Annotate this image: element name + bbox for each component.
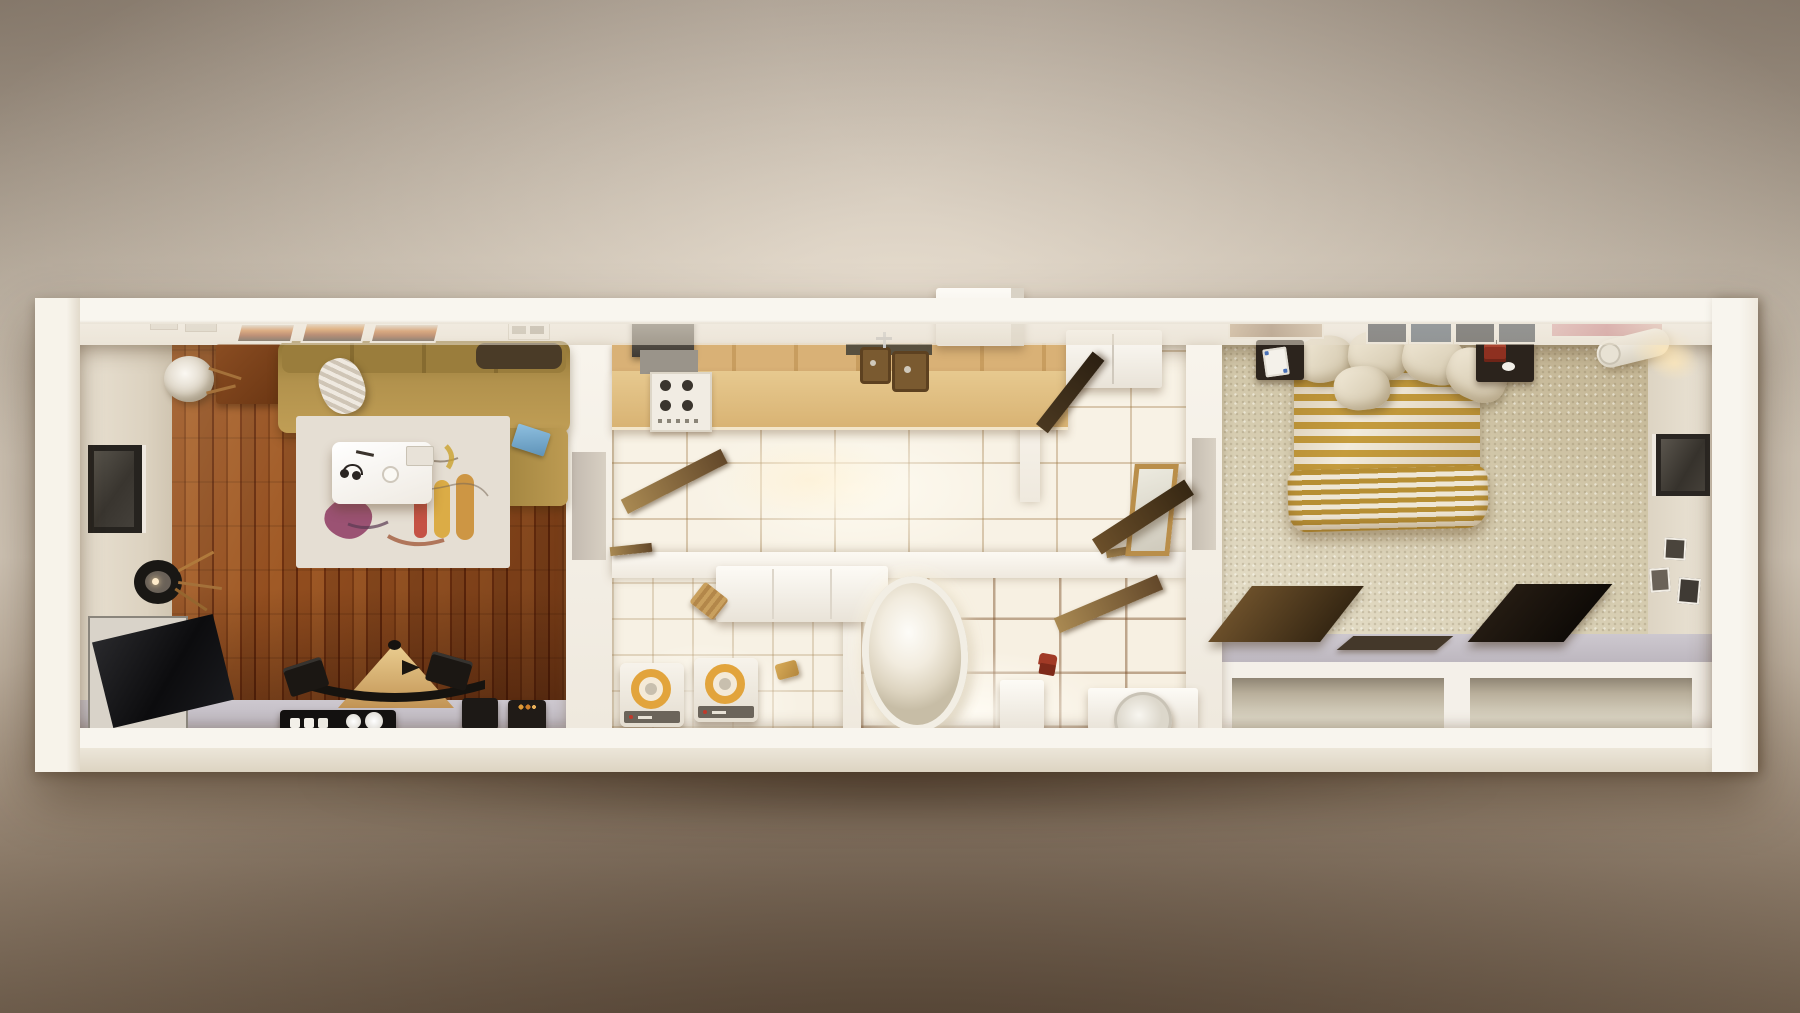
pyramid-knob <box>388 640 401 650</box>
flat-panel-walkway <box>1337 636 1454 650</box>
white-mouse <box>1502 362 1515 371</box>
right-wall-window <box>1652 434 1710 496</box>
artwork-tan <box>1228 322 1324 339</box>
picture-frame-3 <box>1677 577 1701 605</box>
egg-chair <box>164 356 214 402</box>
orange-artwork-2 <box>300 321 367 343</box>
cup <box>382 466 399 483</box>
bed-foot-blanket <box>1287 465 1489 532</box>
sofa-bolster <box>476 343 562 369</box>
outer-wall-top <box>35 298 1758 324</box>
cube-amber-dots <box>518 704 536 710</box>
bath-side-cabinet <box>1000 680 1044 730</box>
doorway-shadow-living <box>572 452 606 560</box>
outer-wall-left <box>35 298 80 772</box>
washer-2 <box>694 658 758 722</box>
outer-wall-right <box>1712 298 1758 772</box>
floor-lamp-bulb <box>152 578 159 585</box>
picture-frame-1 <box>1663 537 1686 560</box>
red-towel <box>1036 652 1060 677</box>
outer-wall-bottom-face <box>35 748 1758 772</box>
orange-artwork-1 <box>236 323 297 343</box>
console-button-1 <box>290 718 300 728</box>
left-wall-window <box>88 445 146 533</box>
closet-niche-left <box>1232 678 1444 728</box>
washer-1 <box>620 663 684 727</box>
bedroom-corner-glow <box>1640 338 1710 388</box>
faucet <box>876 332 892 350</box>
console-knob-1 <box>346 714 361 729</box>
scene <box>0 0 1800 1013</box>
console-button-2 <box>304 718 314 728</box>
laundry-wall-cabinet <box>716 566 888 622</box>
notepad <box>1262 346 1290 377</box>
sink-basin-1 <box>860 347 891 384</box>
orange-artwork-3 <box>370 323 441 343</box>
red-books <box>1484 344 1506 362</box>
closet-divider <box>1444 666 1470 728</box>
kitchen-light-glow <box>680 420 940 540</box>
small-gray-print <box>508 322 550 340</box>
doorway-shadow-bedroom <box>1192 438 1216 550</box>
storage-cube-1 <box>462 698 498 730</box>
headphones-icon <box>340 464 362 480</box>
wall-kitchen-bath-divider <box>612 552 1186 578</box>
closet-niche-right <box>1470 678 1692 728</box>
sink-basin-2 <box>892 351 929 392</box>
picture-frame-2 <box>1649 567 1671 592</box>
stove-slab <box>640 350 698 374</box>
console-button-3 <box>318 718 328 728</box>
outer-wall-bottom <box>35 728 1758 748</box>
tray <box>406 446 434 466</box>
